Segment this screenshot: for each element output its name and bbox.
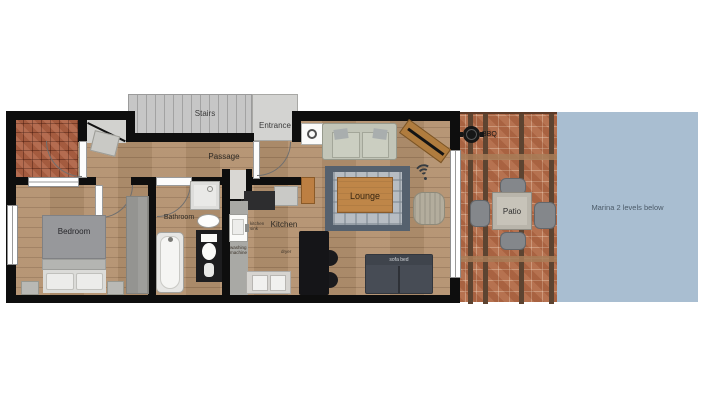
sofa-pillow [333,128,348,140]
passage-label: Passage [196,153,252,161]
bedroom-label: Bedroom [42,228,106,236]
sink-bowl [232,219,244,235]
pergola-beam [455,256,557,262]
pillow [76,273,103,290]
console-table [301,177,315,204]
toilet-zone [196,230,222,282]
lounge-label: Lounge [338,192,392,201]
dryer-label: dryer [281,249,297,254]
kitchen-sink [229,214,248,242]
round-fixture-icon [307,129,317,139]
patio-chair [470,200,490,227]
bed [42,215,106,259]
kitchen-counter [246,271,291,294]
sofa-bed-seam [398,266,400,293]
wall [126,133,254,142]
bathtub-tap [168,237,173,242]
wall [6,111,134,120]
bbq-label: BBQ [482,131,504,138]
armchair [413,192,445,225]
fridge [274,186,298,206]
wall [450,111,460,151]
bbq-icon [463,126,480,143]
pillow [46,273,74,290]
window [28,177,79,187]
basin [197,214,220,228]
nightstand [21,281,39,295]
wall [6,295,460,303]
window [7,205,18,265]
sofa-bed-label: sofa bed [366,258,432,263]
wall [6,177,30,185]
wall [131,177,156,185]
bathtub [156,232,184,293]
hob [252,275,268,291]
shower-drain [207,186,213,192]
nightstand [107,281,124,295]
sofa-bed: sofa bed [365,254,433,294]
washing-machine-label: washing machine [230,245,252,255]
side-table [301,123,323,145]
kitchen-counter [244,191,275,210]
bed-blanket-band [42,259,106,270]
wall [78,111,87,142]
toilet-tank [201,234,217,242]
shower [190,181,220,210]
kitchen-sink-label: kitchen sink [250,221,270,231]
patio-table: Patio [492,192,532,230]
bathtub-inner [160,236,180,289]
patio-chair [500,232,526,250]
pergola-beam [455,154,557,160]
bathroom-fixture [204,263,214,277]
hob [270,275,286,291]
floor-plan: Marina 2 levels below BBQ Patio Stairs E… [0,0,720,400]
patio-chair [534,202,556,229]
stairs-label: Stairs [150,110,260,118]
sofa [322,123,397,160]
wall [148,185,156,295]
wall [292,111,459,121]
patio-sliding-door [450,150,461,278]
wifi-icon [413,162,437,186]
wardrobe [126,196,149,294]
wall [76,177,96,185]
dining-table [299,231,329,295]
coffee-table: Lounge [337,177,393,213]
toilet-bowl [202,243,216,260]
wall [126,111,135,142]
sofa-pillow [372,128,387,140]
patio-label: Patio [493,208,531,216]
bathroom-label: Bathroom [158,214,200,221]
marina-label: Marina 2 levels below [567,204,688,212]
sink-tap [245,224,249,232]
patio-area: BBQ Patio [455,112,557,302]
